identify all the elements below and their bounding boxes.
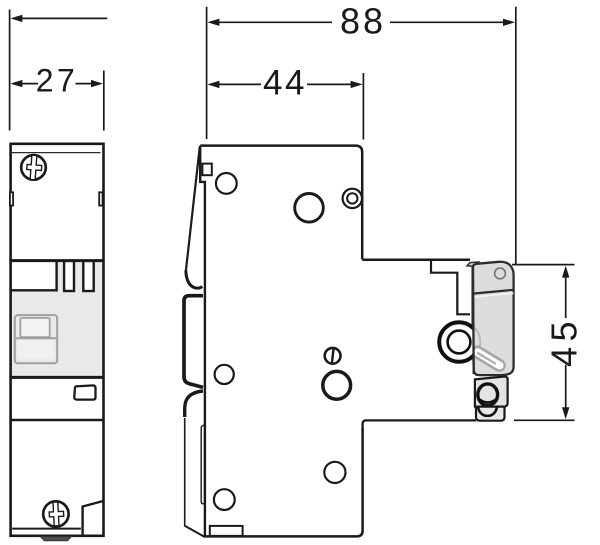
- svg-text:88: 88: [340, 1, 386, 42]
- svg-text:45: 45: [544, 316, 585, 367]
- svg-text:27: 27: [36, 62, 79, 98]
- svg-text:44: 44: [263, 63, 307, 102]
